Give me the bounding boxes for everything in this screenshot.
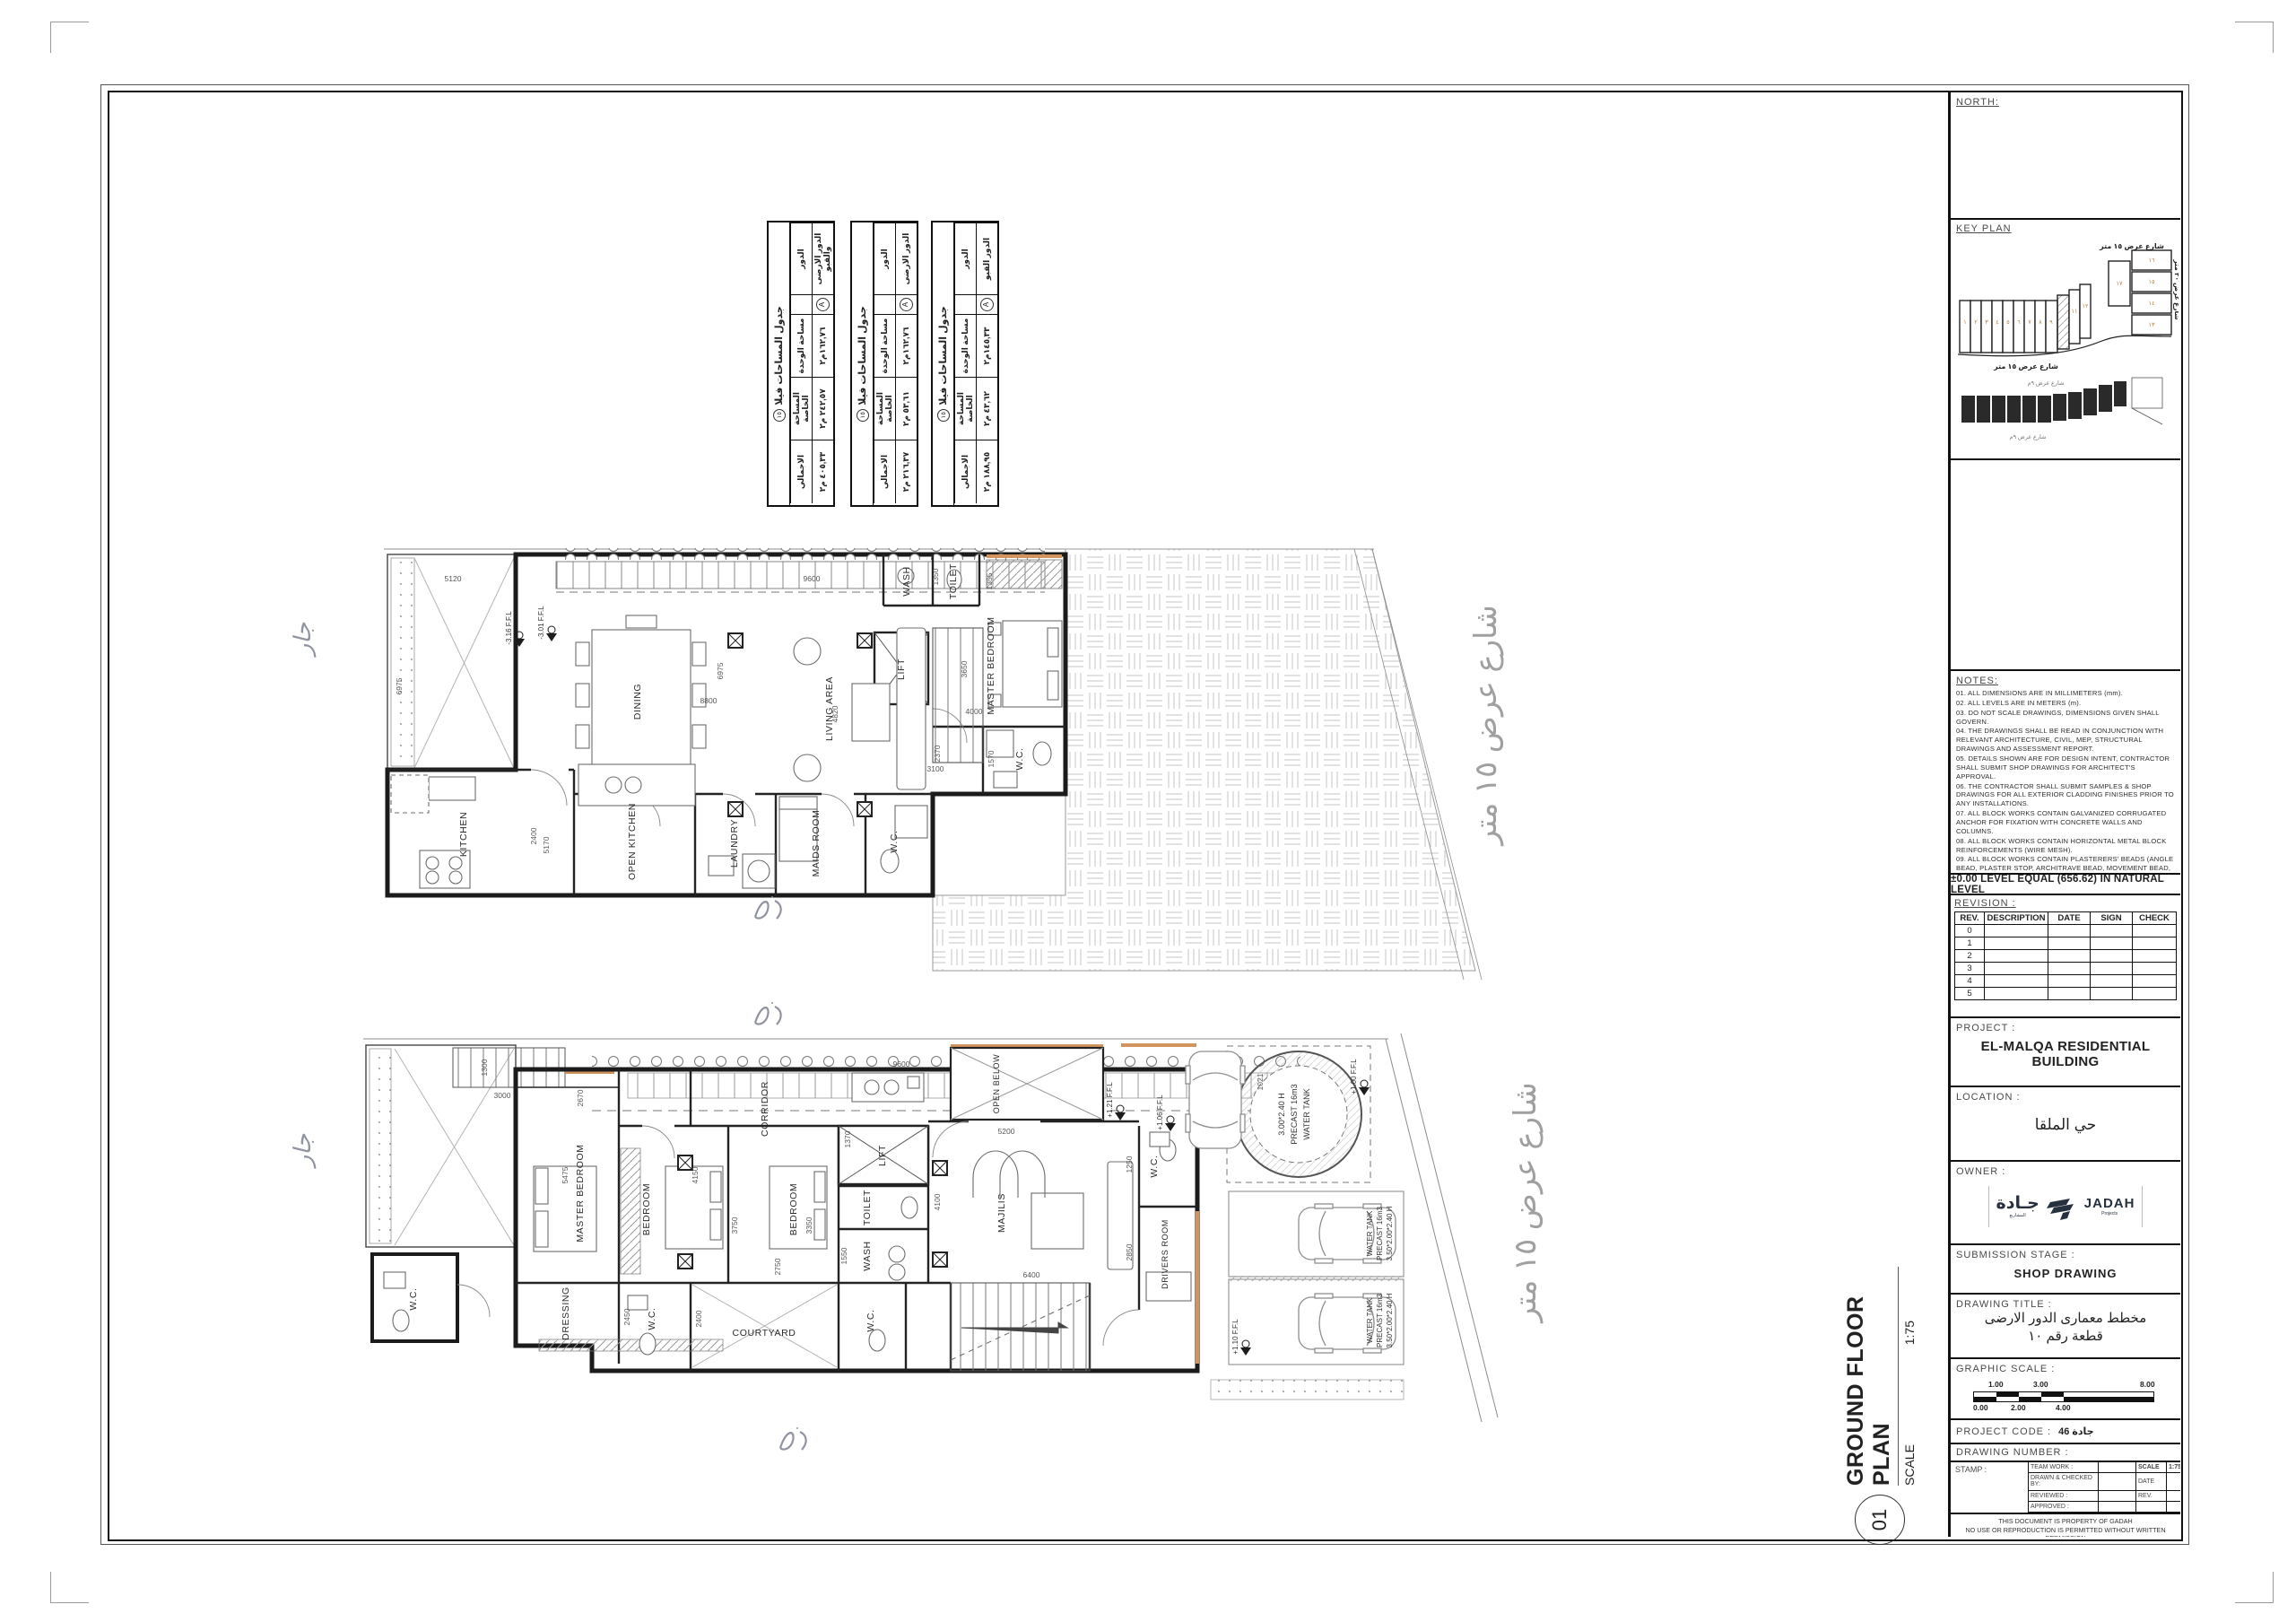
date-label: DATE <box>2136 1473 2167 1490</box>
svg-text:2400: 2400 <box>529 827 538 844</box>
svg-text:٦: ٦ <box>2017 319 2021 326</box>
svg-text:١٧: ١٧ <box>2117 281 2123 287</box>
svg-text:WATER TANK: WATER TANK <box>1366 1210 1374 1256</box>
trim-mark <box>50 22 89 53</box>
svg-text:6975: 6975 <box>716 662 725 679</box>
wardrobe <box>539 1339 723 1351</box>
drawing-title-section: DRAWING TITLE : مخطط معمارى الدور الارضى… <box>1951 1295 2180 1359</box>
table-title: جدول المساحات فيلا <box>773 306 785 405</box>
disclaimer-line-2: NO USE OR REPRODUCTION IS PERMITTED WITH… <box>1956 1526 2175 1537</box>
note: 08. ALL BLOCK WORKS CONTAIN HORIZONTAL M… <box>1956 837 2175 855</box>
room-label: COURTYARD <box>733 1328 796 1339</box>
total-area: ١٨٨,٩٥ م٢ <box>976 440 997 503</box>
col-header: الدور <box>954 222 976 294</box>
submission-label: SUBMISSION STAGE : <box>1956 1250 2075 1260</box>
private-area: ٤٣,٦٢ م٢ <box>976 377 997 440</box>
svg-text:-3.16 F.F.L: -3.16 F.F.L <box>505 611 513 645</box>
submission-value: SHOP DRAWING <box>1956 1260 2175 1286</box>
room-label: OPEN KITCHEN <box>627 803 638 880</box>
level-note: ±0.00 LEVEL EQUAL (656.62) IN NATURAL LE… <box>1951 875 2180 895</box>
note: 05. DETAILS SHOWN ARE FOR DESIGN INTENT,… <box>1956 754 2175 781</box>
trim-mark <box>2235 1572 2274 1603</box>
kitchenette <box>852 1073 924 1102</box>
svg-text:WATER TANK: WATER TANK <box>1302 1088 1311 1139</box>
svg-text:1350: 1350 <box>931 568 940 585</box>
svg-text:١٢: ١٢ <box>2083 303 2089 310</box>
svg-text:4820: 4820 <box>831 705 839 722</box>
room-label: MAJILIS <box>996 1193 1007 1233</box>
col-header: الاجمالي <box>790 440 812 503</box>
rev-label: REV. <box>2136 1491 2167 1502</box>
logo-arabic: جـادة <box>1996 1194 2039 1213</box>
svg-text:5475: 5475 <box>561 1166 570 1183</box>
svg-text:8800: 8800 <box>700 696 717 705</box>
svg-text:-3.01 F.F.L: -3.01 F.F.L <box>537 606 545 640</box>
drawn-label: DRAWN & CHECKED BY: <box>2029 1473 2099 1490</box>
note: 06. THE CONTRACTOR SHALL SUBMIT SAMPLES … <box>1956 782 2175 809</box>
note: 03. DO NOT SCALE DRAWINGS, DIMENSIONS GI… <box>1956 709 2175 727</box>
svg-text:شارع عرض ١٥ متر: شارع عرض ١٥ متر <box>1993 362 2058 371</box>
drawing-sheet: KITCHEN OPEN KITCHEN DINING LIVING AREA … <box>0 0 2296 1622</box>
svg-text:شارع عرض ٢٠ متر: شارع عرض ٢٠ متر <box>2173 258 2179 319</box>
unit-area: ١٤٥,٣٣م٢ <box>976 314 997 377</box>
room-label: DRIVERS ROOM <box>1161 1219 1170 1289</box>
scale-value: 1:75 <box>1902 1321 1917 1345</box>
fence-posts <box>556 548 1045 560</box>
svg-text:٧: ٧ <box>2028 319 2031 326</box>
floor-name: الدور الارضى <box>895 222 917 294</box>
villa-number-badge: ١٥ <box>773 409 786 422</box>
col-header: المساحة الخاصة <box>954 377 976 440</box>
street-label-top: شارع عرض ١٥ متر <box>1469 605 1504 847</box>
owner-label: OWNER : <box>1956 1166 2005 1177</box>
svg-text:شارع عرض ٩م: شارع عرض ٩م <box>2010 434 2047 440</box>
room-label: MASTER BEDROOM <box>575 1144 586 1242</box>
svg-text:5170: 5170 <box>542 836 551 853</box>
svg-text:١٤: ١٤ <box>2149 301 2155 307</box>
svg-text:2670: 2670 <box>576 1089 585 1106</box>
villa-number-badge: ١٥ <box>857 409 869 422</box>
note: 02. ALL LEVELS ARE IN METERS (m). <box>1956 699 2175 708</box>
street-label-bottom: شارع عرض ١٥ متر <box>1509 1082 1544 1324</box>
room-label: MAIDS ROOM <box>811 810 822 877</box>
svg-text:1550: 1550 <box>839 1247 848 1264</box>
room-label: W.C. <box>865 1309 876 1331</box>
svg-text:4150: 4150 <box>691 1166 700 1183</box>
owner-logo: جـادة المشاريع JADAH Projects <box>1956 1186 2175 1227</box>
stamp-label: STAMP : <box>1951 1462 2029 1513</box>
project-code-value: جادة 46 <box>2058 1426 2094 1437</box>
unit-mark: A <box>900 298 913 311</box>
svg-text:2370: 2370 <box>933 745 942 762</box>
parking-bays: WATER TANK PRECAST 16m3 3.50*2.00*2.40 H… <box>1196 1191 1404 1365</box>
staircase <box>933 628 983 763</box>
private-area: ٢٤٢,٥٧ م٢ <box>812 377 833 440</box>
drawing-number-bubble: 01 <box>1855 1495 1905 1545</box>
open-below <box>951 1044 1103 1120</box>
svg-text:١٥: ١٥ <box>2149 279 2155 285</box>
svg-text:3650: 3650 <box>960 660 969 677</box>
svg-text:٩: ٩ <box>2049 319 2053 326</box>
svg-text:2750: 2750 <box>773 1258 782 1275</box>
svg-text:3000: 3000 <box>494 1091 511 1100</box>
note: 01. ALL DIMENSIONS ARE IN MILLIMETERS (m… <box>1956 689 2175 698</box>
svg-text:WATER TANK: WATER TANK <box>1366 1297 1374 1343</box>
accent-wall <box>987 554 1062 558</box>
room-label: TOILET <box>948 563 959 599</box>
room-label: WASH <box>901 566 912 597</box>
room-label: WASH <box>862 1241 873 1271</box>
project-label: PROJECT : <box>1956 1023 2015 1033</box>
svg-text:1300: 1300 <box>480 1059 489 1076</box>
location-name: حي الملقا <box>1956 1103 2175 1147</box>
stamp-section: STAMP : TEAM WORK : SCALE 1:75 DRAWN & C… <box>1951 1462 2180 1514</box>
graphic-scale-bar: 1.00 3.00 8.00 0.00 2.00 4.00 <box>1973 1380 2158 1416</box>
logo-latin-sub: Projects <box>2084 1212 2135 1216</box>
svg-text:6975: 6975 <box>395 677 404 694</box>
svg-text:٣: ٣ <box>1985 319 1988 326</box>
svg-text:9600: 9600 <box>893 1060 910 1068</box>
drawing-title-ar-2: قطعة رقم ١٠ <box>1956 1328 2175 1346</box>
car <box>1186 1051 1245 1148</box>
svg-text:+1.10 F.F.L: +1.10 F.F.L <box>1231 1319 1239 1355</box>
table-title: جدول المساحات فيلا <box>857 306 868 405</box>
svg-text:1250: 1250 <box>1125 1155 1134 1173</box>
team-work-label: TEAM WORK : <box>2029 1462 2099 1473</box>
wc-annex <box>372 1254 490 1341</box>
approved-label: APPROVED : <box>2029 1502 2099 1513</box>
graphic-scale-section: GRAPHIC SCALE : 1.00 3.00 8.00 0. <box>1951 1359 2180 1420</box>
svg-text:+1.06 F.F.L: +1.06 F.F.L <box>1156 1094 1164 1130</box>
svg-text:١: ١ <box>1963 319 1967 326</box>
room-label: OPEN BELOW <box>992 1054 1001 1114</box>
unit-area: ١٦٢,٧٦م٢ <box>812 314 833 377</box>
svg-text:PRECAST 16m3: PRECAST 16m3 <box>1290 1084 1299 1144</box>
room-label: DINING <box>632 684 643 719</box>
notes-label: NOTES: <box>1956 676 1998 686</box>
svg-text:3750: 3750 <box>730 1216 739 1234</box>
svg-text:٢: ٢ <box>1974 319 1978 326</box>
note: 09. ALL BLOCK WORKS CONTAIN PLASTERERS' … <box>1956 855 2175 875</box>
scale-key: SCALE <box>2136 1462 2167 1473</box>
title-block: NORTH: KEY PLAN شارع عرض ١٥ متر <box>1948 92 2180 1537</box>
svg-text:3100: 3100 <box>927 764 944 773</box>
wardrobe <box>621 1148 640 1274</box>
room-label: LIFT <box>896 658 907 680</box>
scale-val: 1:75 <box>2167 1462 2180 1473</box>
room-label: CORRIDOR <box>760 1081 770 1137</box>
unit-area: ١٦٢,٧٦م٢ <box>895 314 917 377</box>
plan-top: KITCHEN OPEN KITCHEN DINING LIVING AREA … <box>289 548 1504 980</box>
area-table-ground-basement: جدول المساحات فيلا ١٥ الدور مساحة الوحدة… <box>767 221 835 507</box>
key-plan-label: KEY PLAN <box>1956 223 2012 234</box>
svg-text:PRECAST 16m3: PRECAST 16m3 <box>1376 1207 1384 1260</box>
svg-text:5120: 5120 <box>445 574 462 583</box>
location-section: LOCATION : حي الملقا <box>1951 1087 2180 1162</box>
svg-text:4000: 4000 <box>966 707 983 716</box>
room-label: W.C. <box>647 1307 657 1330</box>
project-code-section: PROJECT CODE : جادة 46 <box>1951 1420 2180 1444</box>
drawing-title-label: DRAWING TITLE : <box>1956 1299 2052 1310</box>
hand-mark <box>780 1427 806 1450</box>
floor-name: الدور الارضى والقبو <box>812 222 833 294</box>
col-header: مساحة الوحدة <box>954 314 976 377</box>
col-header: الاجمالي <box>874 440 895 503</box>
svg-text:٨: ٨ <box>2039 319 2042 326</box>
trim-mark <box>2235 22 2274 53</box>
svg-text:1021: 1021 <box>1256 1073 1265 1090</box>
reviewed-label: REVIEWED : <box>2029 1491 2099 1502</box>
col-header: الاجمالي <box>954 440 976 503</box>
svg-text:3.00*2.40 H: 3.00*2.40 H <box>1277 1093 1286 1136</box>
disclaimer-line-1: THIS DOCUMENT IS PROPERTY OF GADAH <box>1956 1517 2175 1526</box>
disclaimer: THIS DOCUMENT IS PROPERTY OF GADAH NO US… <box>1951 1514 2180 1537</box>
svg-text:شارع عرض ٩م: شارع عرض ٩م <box>2028 380 2065 387</box>
svg-text:٥: ٥ <box>2006 319 2010 326</box>
area-table-basement: جدول المساحات فيلا ١٥ الدور مساحة الوحدة… <box>931 221 999 507</box>
room-label: W.C. <box>889 830 900 852</box>
closet-strip <box>556 562 1045 589</box>
svg-text:9600: 9600 <box>804 574 821 583</box>
project-section: PROJECT : EL-MALQA RESIDENTIAL BUILDING <box>1951 1018 2180 1087</box>
room-label: MASTER BEDROOM <box>986 616 996 714</box>
svg-text:PRECAST 16m3: PRECAST 16m3 <box>1376 1294 1384 1347</box>
site-plan-blocks <box>1961 381 2126 423</box>
svg-text:١١: ١١ <box>2072 309 2078 315</box>
svg-text:3.50*2.00*2.40 H: 3.50*2.00*2.40 H <box>1386 1293 1394 1347</box>
note: 04. THE DRAWINGS SHALL BE READ IN CONJUN… <box>1956 727 2175 754</box>
col-header: مساحة الوحدة <box>874 314 895 377</box>
room-label: BEDROOM <box>641 1183 652 1235</box>
room-label: DRESSING <box>561 1286 571 1340</box>
svg-text:1370: 1370 <box>843 1130 852 1147</box>
north-section: NORTH: <box>1951 92 2180 220</box>
svg-text:١٣: ١٣ <box>2149 322 2155 328</box>
room-label: BEDROOM <box>788 1183 799 1235</box>
col-header: المساحة الخاصة <box>790 377 812 440</box>
neighbor-note: جار <box>289 1133 317 1169</box>
room-label: W.C. <box>1014 747 1025 770</box>
revision-table: REV. DESCRIPTION DATE SIGN CHECK 0 1 2 3… <box>1954 911 2177 1000</box>
drawing-callout: 01 GROUND FLOOR PLAN SCALE 1:75 <box>1844 1267 1916 1545</box>
garden <box>387 554 516 770</box>
col-header: الدور <box>874 222 895 294</box>
svg-text:1570: 1570 <box>987 750 996 767</box>
total-area: ٤٠٥,٣٣ م٢ <box>812 440 833 503</box>
blank-section <box>1951 460 2180 671</box>
project-code-label: PROJECT CODE : <box>1956 1426 2051 1437</box>
scale-label: SCALE <box>1902 1444 1917 1486</box>
wardrobe <box>987 560 1062 589</box>
svg-text:6400: 6400 <box>1023 1270 1040 1279</box>
submission-section: SUBMISSION STAGE : SHOP DRAWING <box>1951 1245 2180 1295</box>
notes-section: NOTES: 01. ALL DIMENSIONS ARE IN MILLIME… <box>1951 671 2180 875</box>
svg-text:١٦: ١٦ <box>2149 257 2155 264</box>
logo-latin: JADAH <box>2084 1196 2135 1211</box>
svg-text:3.50*2.00*2.40 H: 3.50*2.00*2.40 H <box>1386 1206 1394 1260</box>
drawing-title-text: GROUND FLOOR PLAN <box>1843 1267 1899 1486</box>
floor-name: الدور القبو <box>976 222 997 294</box>
svg-text:2400: 2400 <box>694 1310 703 1327</box>
svg-text:+1.00 F.F.L: +1.00 F.F.L <box>1350 1059 1358 1094</box>
plan-bottom: 3.00*2.40 H PRECAST 16m3 WATER TANK WATE… <box>289 1002 1544 1450</box>
room-label: TOILET <box>862 1190 873 1225</box>
trim-mark <box>50 1572 89 1603</box>
key-plan-section: KEY PLAN شارع عرض ١٥ متر <box>1951 220 2180 460</box>
total-area: ٢١٦,٣٧ م٢ <box>895 440 917 503</box>
svg-text:2850: 2850 <box>1125 1243 1134 1260</box>
svg-text:3350: 3350 <box>804 1216 813 1234</box>
table-title: جدول المساحات فيلا <box>937 306 949 405</box>
level-markers-top: -3.16 F.F.L -3.01 F.F.L <box>505 606 557 647</box>
hand-mark <box>755 896 781 919</box>
svg-text:2450: 2450 <box>622 1308 631 1325</box>
villa-number-badge: ١٥ <box>937 409 950 422</box>
area-table-ground: جدول المساحات فيلا ١٥ الدور مساحة الوحدة… <box>850 221 918 507</box>
jadah-logo-icon <box>2047 1193 2077 1220</box>
svg-text:5200: 5200 <box>998 1127 1015 1136</box>
location-label: LOCATION : <box>1956 1092 2021 1103</box>
private-area: ٥٣,٦١ م٢ <box>895 377 917 440</box>
room-label: KITCHEN <box>458 812 469 857</box>
svg-text:4100: 4100 <box>933 1193 942 1210</box>
col-header: المساحة الخاصة <box>874 377 895 440</box>
svg-text:+1.21 F.F.L: +1.21 F.F.L <box>1106 1082 1114 1118</box>
drawing-number-section: DRAWING NUMBER : <box>1951 1444 2180 1462</box>
revision-section: REVISION : REV. DESCRIPTION DATE SIGN CH… <box>1951 895 2180 1018</box>
room-label: W.C. <box>1149 1155 1160 1177</box>
floor-plan-canvas: KITCHEN OPEN KITCHEN DINING LIVING AREA … <box>109 92 1948 1537</box>
north-label: NORTH: <box>1956 97 1999 108</box>
col-header: الدور <box>790 222 812 294</box>
svg-text:1355: 1355 <box>985 572 994 589</box>
revision-label: REVISION : <box>1954 898 2016 909</box>
hand-mark <box>755 1002 781 1025</box>
room-label: LIFT <box>877 1145 888 1166</box>
owner-section: OWNER : جـادة المشاريع JADAH Projects <box>1951 1162 2180 1245</box>
drawing-number-label: DRAWING NUMBER : <box>1956 1447 2069 1458</box>
key-plan-map: شارع عرض ١٥ متر ١ ٢ <box>1956 236 2179 449</box>
main-stairs <box>951 1283 1090 1371</box>
note: 07. ALL BLOCK WORKS CONTAIN GALVANIZED C… <box>1956 809 2175 836</box>
room-label: LAUNDRY <box>729 819 740 868</box>
col-header: مساحة الوحدة <box>790 314 812 377</box>
unit-mark: A <box>980 298 994 311</box>
drive-strip <box>1211 1380 1404 1400</box>
svg-text:٤: ٤ <box>1996 319 1999 326</box>
graphic-scale-label: GRAPHIC SCALE : <box>1956 1364 2055 1374</box>
drawing-title-ar-1: مخطط معمارى الدور الارضى <box>1956 1310 2175 1328</box>
unit-mark: A <box>816 298 830 311</box>
neighbor-note: جار <box>289 622 317 658</box>
room-label: W.C. <box>408 1287 419 1310</box>
logo-arabic-sub: المشاريع <box>1996 1214 2039 1218</box>
project-name: EL-MALQA RESIDENTIAL BUILDING <box>1956 1033 2175 1075</box>
